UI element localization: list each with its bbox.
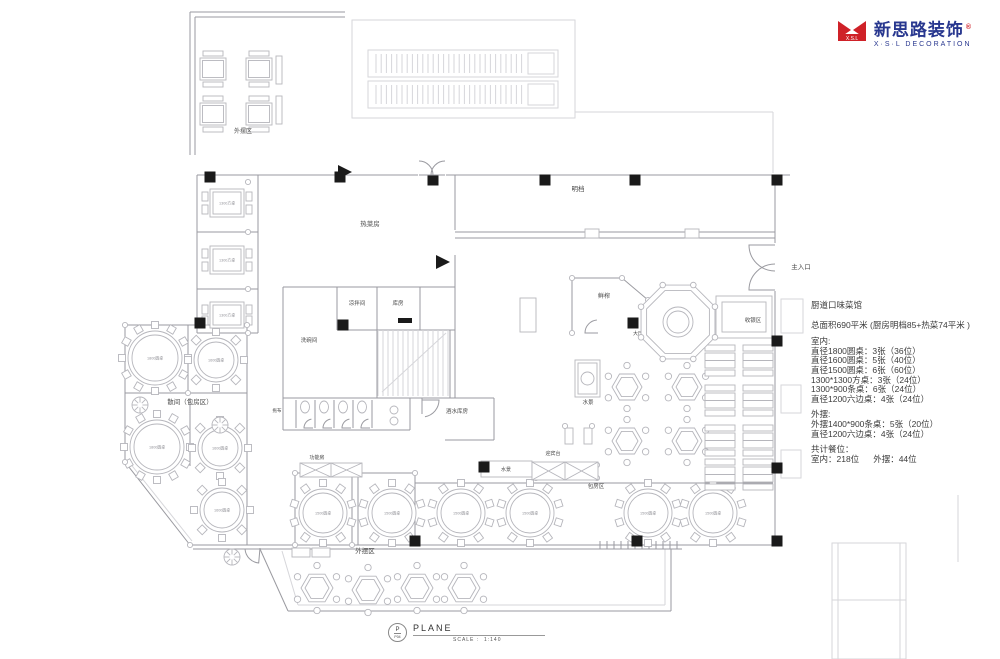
hex-table <box>441 562 486 613</box>
braced-counter <box>532 462 598 480</box>
svg-text:1500圆桌: 1500圆桌 <box>522 511 538 516</box>
booth-table <box>743 345 773 376</box>
restaurant-name: 厨道口味菜馆 <box>811 301 999 311</box>
restroom-stalls <box>296 400 398 428</box>
title-rule <box>413 635 545 636</box>
door-swing <box>585 320 598 333</box>
booth-table <box>743 459 773 490</box>
registered-mark: ® <box>966 24 972 31</box>
logo-name-cn: 新思路装饰® <box>874 18 972 40</box>
booth-table <box>705 459 735 490</box>
escalator <box>368 81 558 108</box>
braced-counter <box>300 463 362 477</box>
svg-text:1300方桌: 1300方桌 <box>219 258 235 263</box>
svg-text:外摆区: 外摆区 <box>234 127 252 135</box>
hex-table <box>665 416 709 465</box>
square-table: 1300方桌 <box>202 246 252 274</box>
section-marker <box>436 255 450 269</box>
plant <box>212 417 228 433</box>
svg-text:1500圆桌: 1500圆桌 <box>705 511 721 516</box>
svg-text:1500圆桌: 1500圆桌 <box>453 511 469 516</box>
svg-text:散间（包房区）: 散间（包房区） <box>167 397 213 406</box>
svg-text:水景: 水景 <box>501 466 511 473</box>
round-table: 1500圆桌 <box>615 480 681 547</box>
outdoor-table <box>200 51 226 87</box>
round-table: 1800圆桌 <box>121 411 194 484</box>
svg-text:洗碗间: 洗碗间 <box>301 336 318 344</box>
svg-text:酒水库房: 酒水库房 <box>446 407 469 415</box>
hex-table <box>665 362 709 411</box>
square-table: 1300方桌 <box>202 189 252 217</box>
staircase <box>378 330 448 396</box>
drawing-sheet: 1800圆桌1600圆桌1800圆桌1600圆桌1600圆桌1500圆桌1500… <box>0 0 1000 659</box>
svg-text:功能房: 功能房 <box>309 454 324 461</box>
svg-text:迎宾台: 迎宾台 <box>545 450 560 457</box>
door-swing <box>749 264 775 290</box>
svg-text:包房区: 包房区 <box>588 482 605 490</box>
plant <box>224 549 240 565</box>
svg-text:X.S.L: X.S.L <box>846 36 858 42</box>
scale-note: SCALE : 1:140 <box>453 637 545 643</box>
svg-text:1600圆桌: 1600圆桌 <box>212 446 228 451</box>
booth-table <box>743 385 773 416</box>
hex-table <box>394 562 439 613</box>
escalator <box>368 50 558 77</box>
outdoor-table <box>246 96 272 132</box>
svg-text:1500圆桌: 1500圆桌 <box>640 511 656 516</box>
outdoor-line: 直径1200六边桌：4张（24位） <box>811 430 999 440</box>
indoor-line: 直径1200六边桌：4张（24位） <box>811 395 999 405</box>
outdoor-table <box>246 51 272 87</box>
svg-text:热菜房: 热菜房 <box>360 219 380 228</box>
svg-text:主入口: 主入口 <box>791 262 811 271</box>
booth-table <box>705 385 735 416</box>
svg-text:1500圆桌: 1500圆桌 <box>384 511 400 516</box>
svg-text:外摆区: 外摆区 <box>355 546 375 555</box>
door-swing <box>422 400 439 417</box>
round-table: 1600圆桌 <box>191 479 254 542</box>
hex-table <box>605 362 649 411</box>
outdoor-table <box>200 96 226 132</box>
plan-symbol: P P04 <box>388 623 407 642</box>
xsl-logo-icon: X.S.L <box>837 18 867 50</box>
svg-text:水景: 水景 <box>582 398 594 406</box>
svg-text:1600圆桌: 1600圆桌 <box>208 358 224 363</box>
total-area-line: 总面积690平米 (厨房明档85+热菜74平米 ) <box>811 321 999 331</box>
total-line: 室内：218位外摆：44位 <box>811 455 999 465</box>
round-table: 1500圆桌 <box>428 480 494 547</box>
svg-text:拖布: 拖布 <box>273 407 282 414</box>
water-feature <box>575 360 600 397</box>
svg-text:库房: 库房 <box>392 299 404 307</box>
round-table: 1800圆桌 <box>119 322 192 395</box>
svg-text:1800圆桌: 1800圆桌 <box>149 445 165 450</box>
hex-table <box>345 564 390 615</box>
svg-text:1600圆桌: 1600圆桌 <box>214 508 230 513</box>
svg-text:鲜榨: 鲜榨 <box>598 292 610 300</box>
round-table: 1500圆桌 <box>290 480 356 547</box>
hex-table <box>294 562 339 613</box>
company-logo: X.S.L 新思路装饰® X·S·L DECORATION <box>837 18 972 50</box>
svg-text:1300方桌: 1300方桌 <box>219 201 235 206</box>
title-block: P P04 PLANE SCALE : 1:140 <box>388 623 545 643</box>
booth-table <box>705 425 735 456</box>
logo-name-en: X·S·L DECORATION <box>874 41 972 48</box>
hex-table <box>605 416 649 465</box>
booth-table <box>705 345 735 376</box>
round-table: 1600圆桌 <box>185 329 248 392</box>
plan-annotation: 厨道口味菜馆 总面积690平米 (厨房明档85+热菜74平米 ) 室内: 直径1… <box>811 301 999 464</box>
svg-text:1500圆桌: 1500圆桌 <box>315 511 331 516</box>
plant <box>132 397 148 413</box>
round-table: 1500圆桌 <box>497 480 563 547</box>
door-swing <box>245 548 260 563</box>
svg-text:1300方桌: 1300方桌 <box>219 313 235 318</box>
booth-table <box>743 425 773 456</box>
svg-text:1800圆桌: 1800圆桌 <box>147 356 163 361</box>
plan-title: PLANE <box>413 623 545 633</box>
svg-text:明档: 明档 <box>572 184 585 193</box>
svg-text:收银区: 收银区 <box>745 316 762 324</box>
svg-text:凉拌间: 凉拌间 <box>349 299 366 307</box>
